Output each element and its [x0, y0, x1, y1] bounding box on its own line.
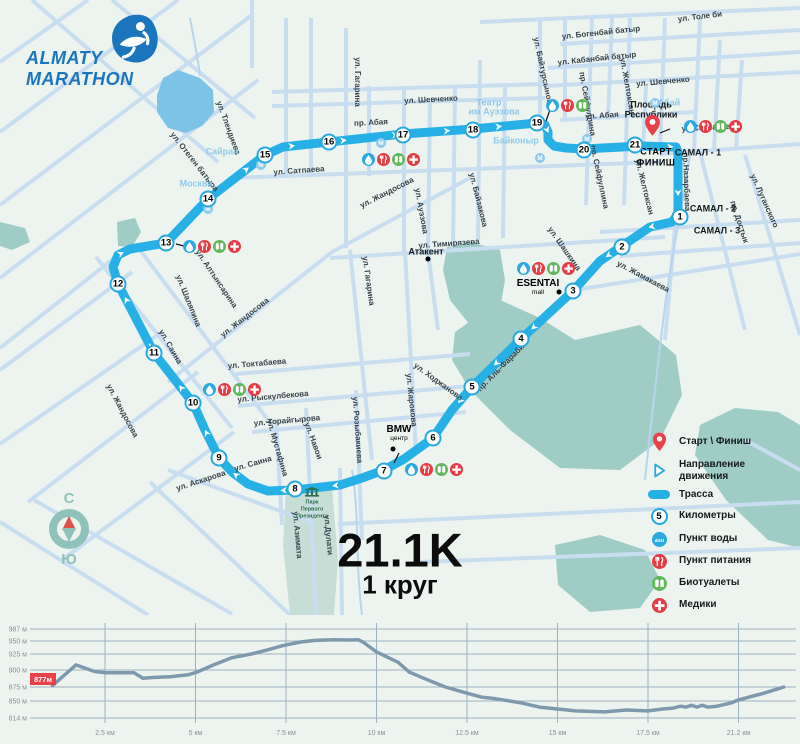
km-marker: 8 — [287, 481, 304, 498]
legend-label: Медики — [679, 599, 774, 611]
km-marker: 4 — [513, 331, 530, 348]
elev-x-tick: 15 км — [549, 730, 567, 737]
km-marker: 6 — [425, 430, 442, 447]
legend-toilet-icon — [648, 576, 670, 591]
toilet-icon — [392, 153, 405, 166]
legend-row: Пункт питания — [648, 554, 774, 569]
food-icon — [561, 99, 574, 112]
map-label: Атакент — [408, 248, 443, 257]
metro-icon: М — [535, 153, 545, 163]
elev-x-tick: 7.5 км — [276, 730, 296, 737]
elev-x-tick: 5 км — [189, 730, 203, 737]
map-label: им Ауэзова — [468, 108, 519, 117]
logo-text-line2: MARATHON — [26, 69, 134, 90]
legend-arrow-icon — [648, 462, 670, 479]
toilet-icon — [435, 463, 448, 476]
km-marker: 13 — [158, 235, 175, 252]
km-marker: 5 — [464, 379, 481, 396]
legend-row: asuПункт воды — [648, 532, 774, 547]
medic-icon — [248, 383, 261, 396]
km-marker: 17 — [395, 127, 412, 144]
map-label: Президента — [296, 514, 328, 520]
elev-y-tick: 850 м — [9, 699, 28, 706]
start-finish-pin — [644, 114, 661, 137]
compass-north-label: С — [49, 490, 89, 507]
runner-icon — [108, 12, 162, 68]
food-icon — [198, 240, 211, 253]
km-marker: 9 — [211, 450, 228, 467]
km-marker: 14 — [200, 191, 217, 208]
km-marker: 20 — [576, 142, 593, 159]
almaty-marathon-logo: ALMATY MARATHON — [26, 48, 134, 90]
elev-y-tick: 950 м — [9, 639, 28, 646]
map-label: Парк — [305, 500, 318, 506]
km-marker: 11 — [146, 345, 163, 362]
map-legend: Старт \ ФинишНаправление движенияТрасса5… — [648, 432, 774, 620]
legend-label: Направление движения — [679, 459, 774, 482]
water-icon — [203, 383, 216, 396]
map-label: mall — [532, 290, 544, 297]
km-marker: 2 — [614, 239, 631, 256]
toilet-icon — [547, 262, 560, 275]
poi-dot — [391, 447, 396, 452]
map-label: BMW — [387, 425, 412, 435]
km-marker: 3 — [565, 283, 582, 300]
legend-label: Пункт питания — [679, 555, 774, 567]
medic-icon — [729, 120, 742, 133]
map-label: САМАЛ - 2 — [690, 205, 736, 214]
water-icon — [517, 262, 530, 275]
map-label: Москва — [180, 180, 213, 189]
km-marker: 12 — [110, 276, 127, 293]
toilet-icon — [233, 383, 246, 396]
km-marker: 1 — [672, 209, 689, 226]
map-label: САМАЛ - 3 — [694, 227, 740, 236]
elev-y-tick: 875 м — [9, 685, 28, 692]
aid-station — [362, 153, 420, 166]
start-elevation-badge: 877м — [34, 675, 53, 684]
map-label: ESENTAI — [517, 279, 560, 289]
legend-row: Биотуалеты — [648, 576, 774, 591]
water-icon — [183, 240, 196, 253]
aid-station — [517, 262, 575, 275]
elev-x-tick: 17.5 км — [636, 730, 660, 737]
medic-icon — [228, 240, 241, 253]
food-icon — [699, 120, 712, 133]
elev-x-tick: 10 км — [368, 730, 386, 737]
elev-y-tick: 900 м — [9, 668, 28, 675]
compass-south-needle — [62, 528, 76, 542]
compass-south-label: Ю — [49, 551, 89, 568]
food-icon — [532, 262, 545, 275]
marathon-route-map: ALMATY MARATHON 21.1K 1 круг С Ю Старт \… — [0, 0, 800, 744]
elev-x-tick: 21.2 км — [727, 730, 751, 737]
aid-station — [203, 383, 261, 396]
elev-y-tick: 814 м — [9, 716, 28, 723]
map-label: Сайран — [205, 148, 238, 157]
toilet-icon — [576, 99, 589, 112]
legend-row: 5Километры — [648, 508, 774, 525]
legend-label: Километры — [679, 510, 774, 522]
map-label: центр — [390, 436, 407, 443]
km-marker: 7 — [376, 463, 393, 480]
laps-subtitle: 1 круг — [362, 570, 438, 601]
legend-row: Медики — [648, 598, 774, 613]
poi-dot — [426, 257, 431, 262]
elev-y-tick: 987 м — [9, 627, 28, 634]
legend-water-icon: asu — [648, 532, 670, 547]
aid-station — [183, 240, 241, 253]
metro-icon: М — [650, 98, 660, 108]
legend-row: Старт \ Финиш — [648, 432, 774, 452]
poi-dot — [557, 290, 562, 295]
compass-rose-icon — [49, 509, 89, 549]
water-icon — [405, 463, 418, 476]
km-marker: 10 — [185, 395, 202, 412]
elev-y-tick: 925 м — [9, 652, 28, 659]
legend-row: Направление движения — [648, 459, 774, 482]
medic-icon — [450, 463, 463, 476]
legend-route-icon — [648, 490, 670, 499]
medic-icon — [562, 262, 575, 275]
elevation-profile-chart: 2.5 км5 км7.5 км10 км12.5 км15 км17.5 км… — [0, 613, 800, 744]
toilet-icon — [714, 120, 727, 133]
water-icon — [546, 99, 559, 112]
km-marker: 15 — [257, 147, 274, 164]
water-icon — [684, 120, 697, 133]
toilet-icon — [213, 240, 226, 253]
aid-station — [684, 120, 742, 133]
food-icon — [218, 383, 231, 396]
map-label: Первого — [301, 507, 324, 513]
compass: С Ю — [49, 490, 89, 568]
legend-row: Трасса — [648, 489, 774, 501]
map-label: Байконыр — [493, 137, 539, 146]
metro-icon: М — [376, 138, 386, 148]
map-label: САМАЛ - 1 — [675, 149, 721, 158]
aid-station — [546, 99, 589, 112]
km-marker: 19 — [529, 115, 546, 132]
map-label: СТАРТ — [640, 148, 672, 157]
legend-medic-icon — [648, 598, 670, 613]
medic-icon — [407, 153, 420, 166]
legend-label: Пункт воды — [679, 533, 774, 545]
legend-food-icon — [648, 554, 670, 569]
svg-text:asu: asu — [654, 537, 664, 543]
legend-label: Биотуалеты — [679, 577, 774, 589]
water-icon — [362, 153, 375, 166]
legend-label: Старт \ Финиш — [679, 436, 774, 448]
km-marker: 18 — [465, 122, 482, 139]
food-icon — [377, 153, 390, 166]
elev-x-tick: 12.5 км — [455, 730, 479, 737]
legend-label: Трасса — [679, 489, 774, 501]
legend-pin-icon — [648, 432, 670, 452]
food-icon — [420, 463, 433, 476]
km-marker: 16 — [321, 134, 338, 151]
elev-x-tick: 2.5 км — [95, 730, 115, 737]
map-label: ФИНИШ — [637, 159, 676, 168]
km-marker: 21 — [627, 137, 644, 154]
legend-kmcircle-icon: 5 — [648, 508, 670, 525]
street-label: ул. Гагарина — [353, 57, 361, 107]
aid-station — [405, 463, 463, 476]
